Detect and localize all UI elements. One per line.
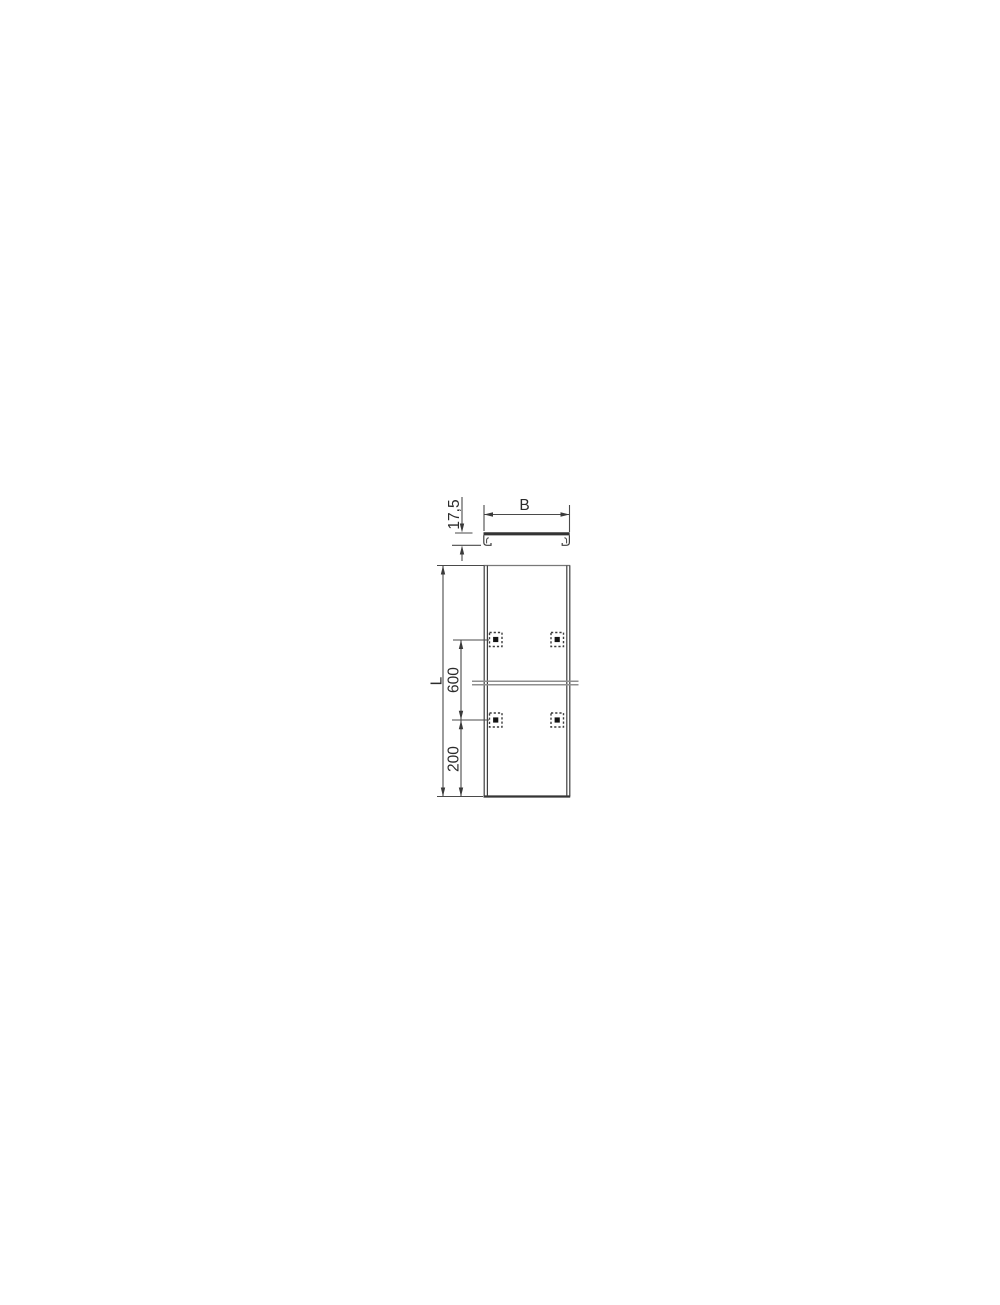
technical-drawing-svg: B 17,5: [0, 0, 1000, 1300]
cover-hem-right-icon: [564, 538, 566, 544]
dim-height-label: 17,5: [446, 499, 463, 529]
dim-end-200: 200: [446, 720, 490, 797]
section-view: B 17,5: [446, 497, 570, 561]
turnbuckle-dot-icon: [555, 637, 560, 642]
cover-hook-right: [562, 535, 569, 545]
dim-spacing-label: 600: [446, 667, 463, 693]
arrowhead-down-icon: [459, 788, 463, 797]
arrowhead-up-icon: [460, 546, 464, 555]
dim-end-label: 200: [446, 746, 463, 772]
turnbuckle-dot-icon: [493, 637, 498, 642]
turnbuckle-markers: [490, 633, 564, 728]
dim-height-17-5: 17,5: [446, 497, 481, 561]
arrowhead-up-icon: [441, 566, 445, 575]
plan-view: L 600 200: [429, 566, 579, 797]
dim-width-label: B: [519, 497, 529, 514]
turnbuckle-marker: [551, 713, 564, 727]
dim-spacing-600: 600: [446, 640, 490, 720]
arrowhead-up-icon: [459, 640, 463, 649]
dim-width-b: B: [484, 497, 570, 532]
turnbuckle-marker: [551, 633, 564, 647]
cover-hem-left-icon: [487, 538, 489, 544]
turnbuckle-marker: [490, 713, 503, 727]
cover-profile: [484, 534, 570, 546]
arrowhead-down-icon: [459, 711, 463, 720]
cover-hook-left: [484, 535, 491, 545]
turnbuckle-dot-icon: [555, 717, 560, 722]
turnbuckle-dot-icon: [493, 717, 498, 722]
dim-length-label: L: [429, 676, 446, 685]
arrowhead-left-icon: [484, 512, 493, 517]
arrowhead-down-icon: [441, 788, 445, 797]
arrowhead-up-icon: [459, 720, 463, 729]
arrowhead-right-icon: [561, 512, 570, 517]
drawing-canvas: B 17,5: [0, 0, 1000, 1300]
turnbuckle-marker: [490, 633, 503, 647]
